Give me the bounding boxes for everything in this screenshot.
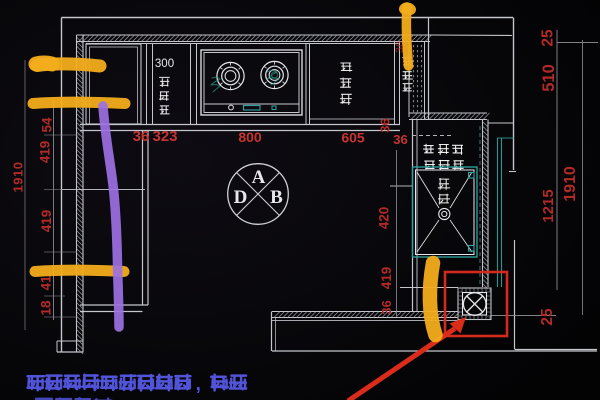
svg-text:54: 54 [40, 117, 55, 133]
svg-text:1910: 1910 [562, 166, 579, 202]
svg-text:36: 36 [133, 128, 150, 145]
svg-text:41: 41 [39, 275, 54, 291]
svg-text:A: A [252, 167, 266, 188]
svg-text:419: 419 [39, 210, 54, 233]
svg-text:25: 25 [539, 308, 556, 326]
svg-text:605: 605 [341, 130, 365, 146]
svg-text:36: 36 [379, 300, 394, 314]
svg-text:36: 36 [378, 118, 393, 132]
svg-text:36: 36 [393, 132, 407, 147]
svg-text:420: 420 [377, 207, 392, 230]
svg-text:,: , [196, 374, 201, 395]
svg-text:1910: 1910 [11, 162, 26, 193]
svg-text:300: 300 [155, 58, 174, 70]
svg-text:D: D [234, 187, 248, 208]
svg-text:419: 419 [379, 267, 394, 290]
svg-text:1215: 1215 [540, 189, 557, 222]
svg-text:419: 419 [38, 141, 53, 164]
svg-text:323: 323 [152, 128, 177, 145]
svg-text:B: B [270, 187, 283, 208]
svg-text:510: 510 [540, 64, 558, 92]
svg-text:25: 25 [540, 29, 557, 47]
svg-text:800: 800 [238, 129, 262, 145]
svg-text:18: 18 [39, 300, 54, 316]
